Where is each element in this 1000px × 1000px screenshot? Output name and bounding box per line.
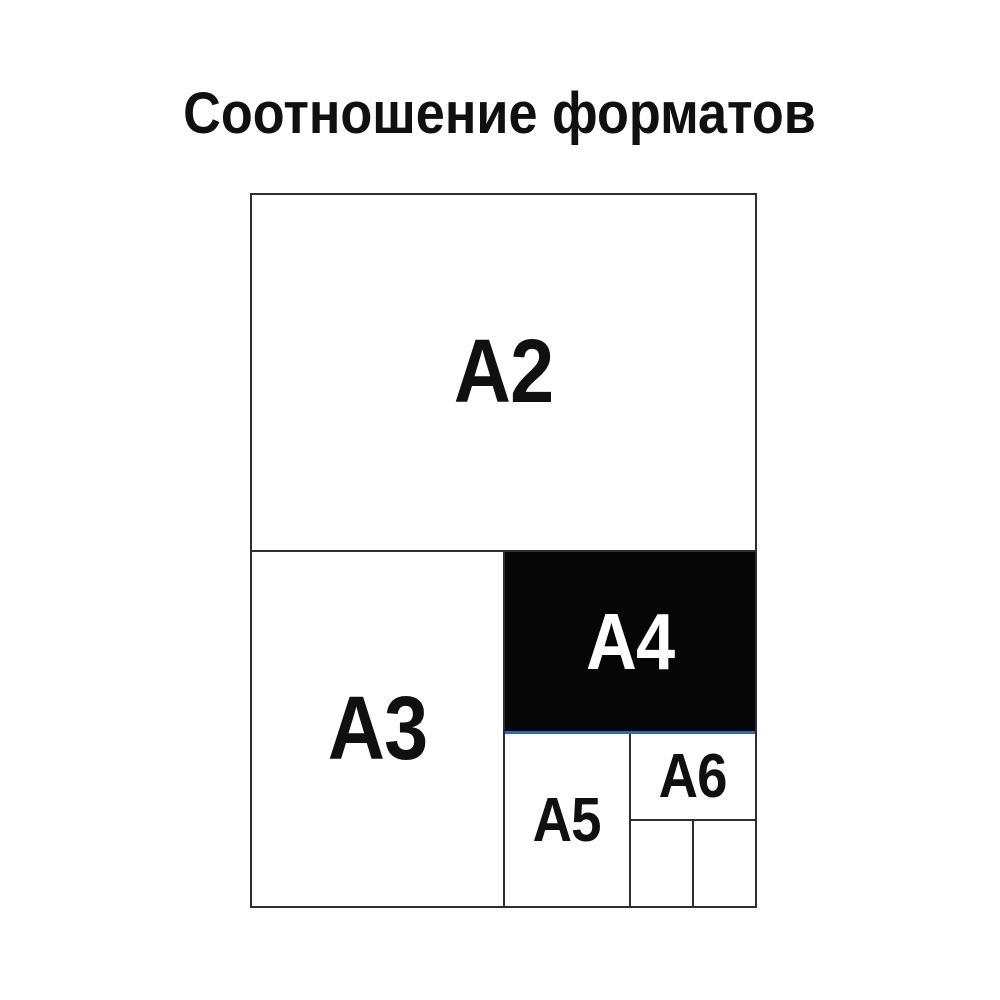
- format-label-a3: A3: [328, 678, 427, 781]
- format-label-a2: A2: [454, 321, 553, 424]
- figure-title-text: Соотношение форматов: [184, 84, 817, 145]
- format-box-a5: A5: [505, 734, 629, 906]
- format-box-sub-right: [694, 821, 755, 906]
- format-box-a6: A6: [631, 734, 755, 819]
- format-label-a6: A6: [659, 741, 727, 812]
- format-box-a4: A4: [505, 552, 755, 731]
- format-diagram: A2 A3 A4 A5 A6: [250, 193, 757, 908]
- format-label-a4: A4: [586, 596, 674, 688]
- figure-title: Соотношение форматов: [0, 84, 1000, 145]
- format-box-sub-left: [631, 821, 692, 906]
- format-box-a3: A3: [252, 552, 503, 906]
- paper-format-ratio-figure: Соотношение форматов A2 A3 A4 A5 A6: [0, 0, 1000, 1000]
- format-box-a2: A2: [252, 195, 755, 550]
- format-label-a5: A5: [533, 785, 601, 856]
